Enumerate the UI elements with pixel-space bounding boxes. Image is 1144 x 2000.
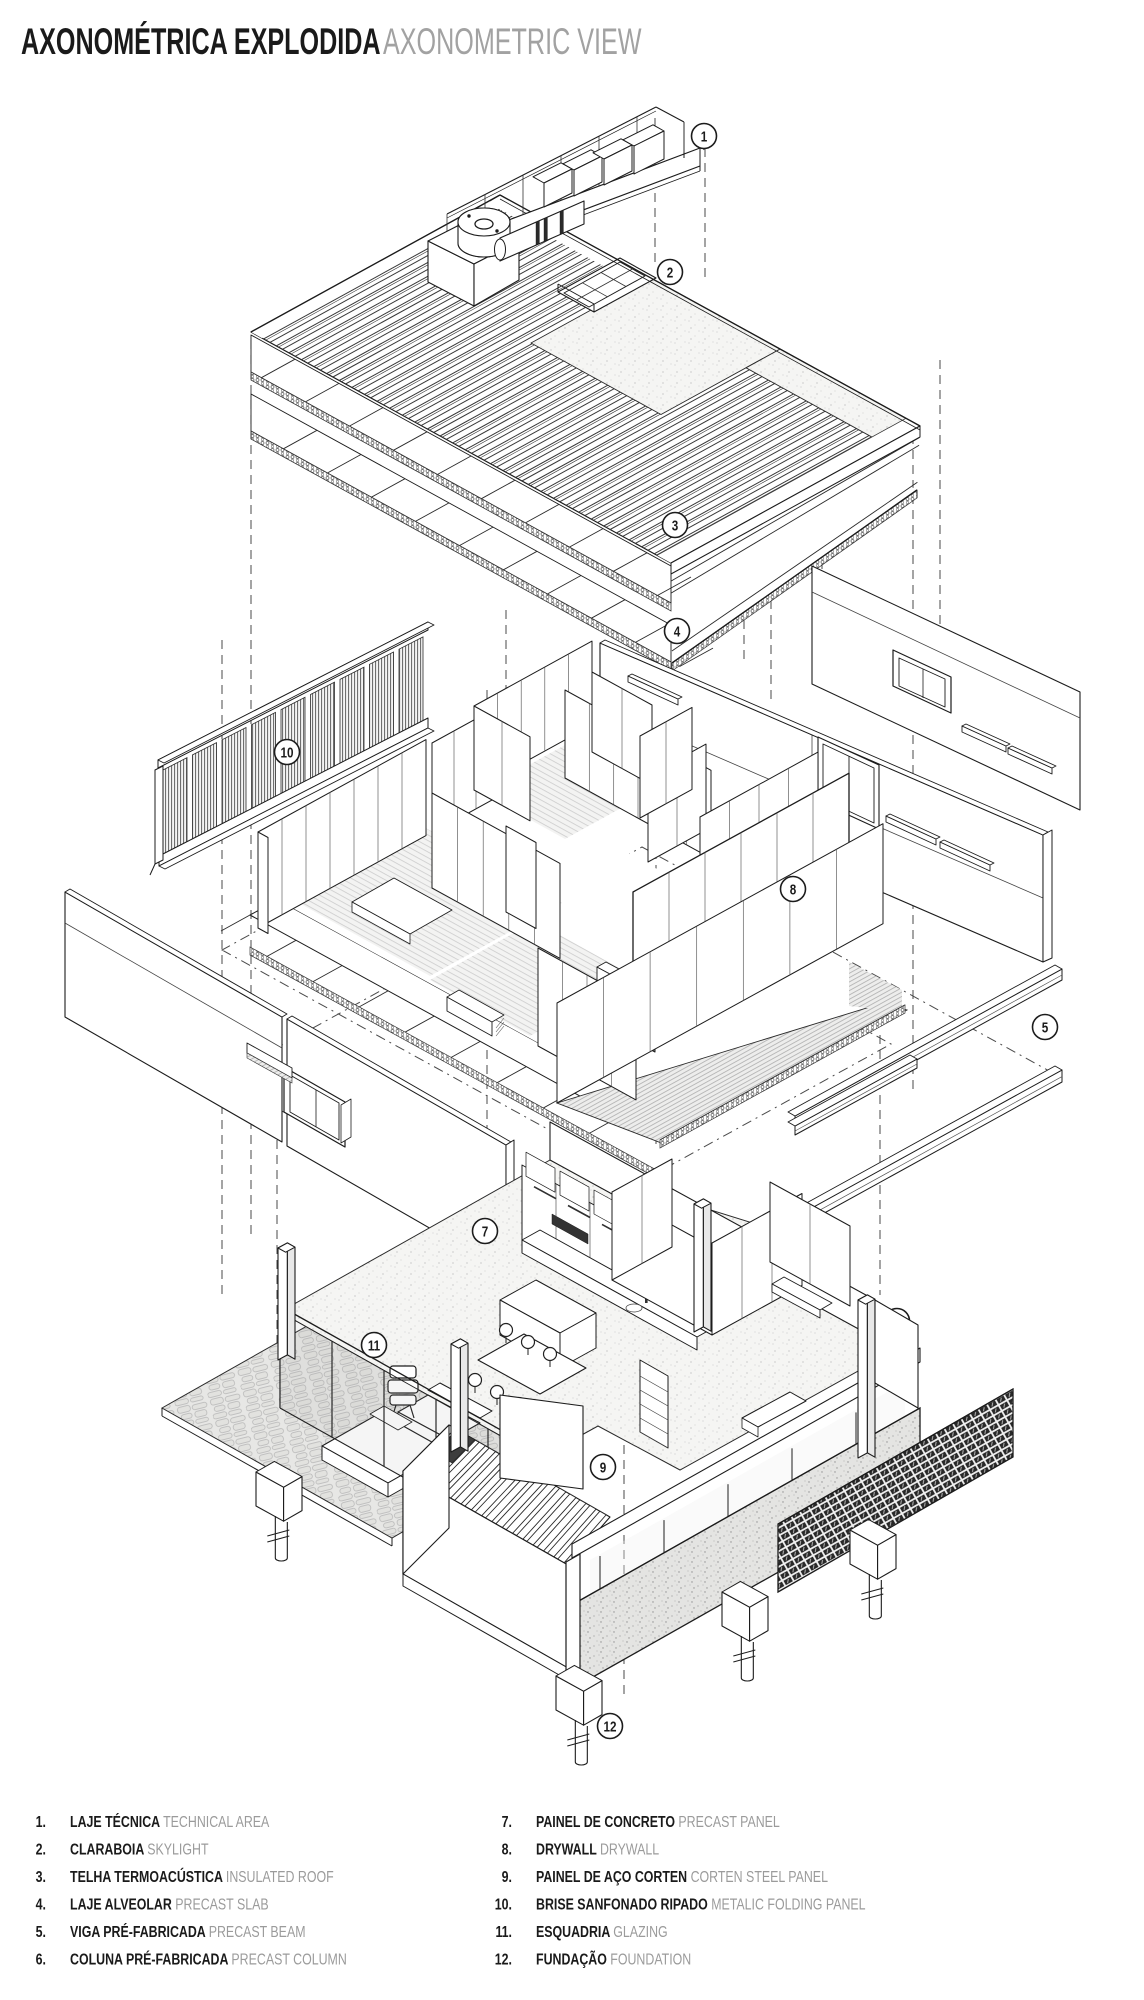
- svg-text:4: 4: [674, 623, 681, 640]
- svg-text:5: 5: [1042, 1019, 1049, 1036]
- svg-text:DRYWALL DRYWALL: DRYWALL DRYWALL: [536, 1840, 659, 1858]
- svg-text:CLARABOIA SKYLIGHT: CLARABOIA SKYLIGHT: [70, 1840, 209, 1858]
- svg-text:5.: 5.: [36, 1923, 46, 1941]
- svg-text:10.: 10.: [495, 1895, 512, 1913]
- svg-text:1: 1: [701, 128, 708, 145]
- svg-text:PAINEL DE CONCRETO PRECAST PAN: PAINEL DE CONCRETO PRECAST PANEL: [536, 1813, 780, 1831]
- svg-text:PAINEL DE AÇO CORTEN CORTEN ST: PAINEL DE AÇO CORTEN CORTEN STEEL PANEL: [536, 1868, 828, 1886]
- svg-text:12.: 12.: [495, 1950, 512, 1968]
- svg-text:9: 9: [600, 1459, 607, 1476]
- svg-text:7: 7: [482, 1223, 489, 1240]
- svg-text:LAJE ALVEOLAR PRECAST SLAB: LAJE ALVEOLAR PRECAST SLAB: [70, 1895, 269, 1913]
- svg-text:8.: 8.: [502, 1840, 512, 1858]
- svg-text:4.: 4.: [36, 1895, 46, 1913]
- svg-text:3: 3: [672, 517, 679, 534]
- svg-text:AXONOMETRIC VIEW: AXONOMETRIC VIEW: [383, 20, 642, 62]
- svg-text:COLUNA PRÉ-FABRICADA PRECAST C: COLUNA PRÉ-FABRICADA PRECAST COLUMN: [70, 1950, 347, 1968]
- svg-text:AXONOMÉTRICA EXPLODIDA: AXONOMÉTRICA EXPLODIDA: [21, 20, 381, 62]
- svg-text:7.: 7.: [502, 1813, 512, 1831]
- svg-text:2: 2: [667, 264, 674, 281]
- svg-text:LAJE TÉCNICA TECHNICAL AREA: LAJE TÉCNICA TECHNICAL AREA: [70, 1813, 270, 1831]
- svg-text:2.: 2.: [36, 1840, 46, 1858]
- svg-text:10: 10: [280, 744, 293, 761]
- svg-text:8: 8: [790, 881, 797, 898]
- svg-text:11.: 11.: [495, 1923, 512, 1941]
- svg-text:VIGA PRÉ-FABRICADA PRECAST BEA: VIGA PRÉ-FABRICADA PRECAST BEAM: [70, 1923, 306, 1941]
- svg-text:FUNDAÇÃO FOUNDATION: FUNDAÇÃO FOUNDATION: [536, 1949, 691, 1968]
- svg-text:3.: 3.: [36, 1868, 46, 1886]
- svg-text:1.: 1.: [36, 1813, 46, 1831]
- svg-text:9.: 9.: [502, 1868, 512, 1886]
- svg-text:ESQUADRIA GLAZING: ESQUADRIA GLAZING: [536, 1923, 668, 1941]
- svg-text:12: 12: [603, 1718, 616, 1735]
- svg-text:BRISE SANFONADO RIPADO METALIC: BRISE SANFONADO RIPADO METALIC FOLDING P…: [536, 1895, 866, 1913]
- svg-text:TELHA TERMOACÚSTICA INSULATED: TELHA TERMOACÚSTICA INSULATED ROOF: [70, 1867, 334, 1886]
- svg-text:6.: 6.: [36, 1950, 46, 1968]
- svg-text:11: 11: [368, 1337, 381, 1354]
